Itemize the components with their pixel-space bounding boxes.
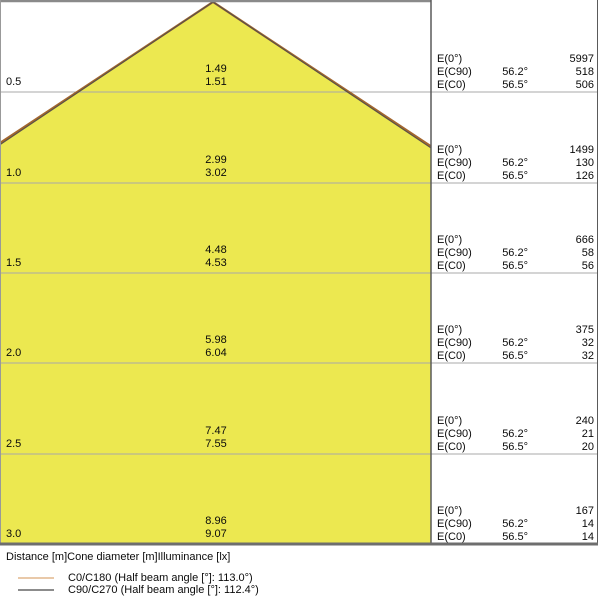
illuminance-row-label-1.5-1: E(0°) [437,234,497,247]
cone-diameter-values-0.5: 1.49 1.51 [166,63,266,89]
illuminance-row-value-3.0-2: 14 [530,518,594,531]
illuminance-row-value-1.5-1: 666 [530,234,594,247]
illuminance-row-angle-0.5-2: 56.2° [460,66,528,79]
cone-diameter-values-1.0: 2.99 3.02 [166,154,266,180]
illuminance-row-label-2.0-1: E(0°) [437,324,497,337]
legend-row-c90-c270: C90/C270 (Half beam angle [°]: 112.4°) [18,584,259,596]
illuminance-row-value-2.0-2: 32 [530,337,594,350]
illuminance-row-angle-3.0-3: 56.5° [460,531,528,544]
illuminance-row-value-3.0-1: 167 [530,505,594,518]
c0-c180-line-swatch [18,577,54,579]
illuminance-row-angle-1.5-2: 56.2° [460,247,528,260]
illuminance-row-value-2.5-2: 21 [530,428,594,441]
illuminance-row-angle-3.0-2: 56.2° [460,518,528,531]
distance-label-3.0: 3.0 [6,528,21,541]
illuminance-row-value-2.0-1: 375 [530,324,594,337]
distance-label-1.0: 1.0 [6,167,21,180]
illuminance-row-value-3.0-3: 14 [530,531,594,544]
distance-label-2.0: 2.0 [6,347,21,360]
cone-diameter-values-2.5: 7.47 7.55 [166,425,266,451]
illuminance-row-angle-2.0-3: 56.5° [460,350,528,363]
illuminance-row-value-1.0-1: 1499 [530,144,594,157]
legend-row-c0-c180: C0/C180 (Half beam angle [°]: 113.0°) [18,572,253,584]
cone-diameter-values-1.5: 4.48 4.53 [166,244,266,270]
legend-label-c90-c270: C90/C270 (Half beam angle [°]: 112.4°) [68,584,259,596]
illuminance-row-value-1.0-3: 126 [530,170,594,183]
illuminance-row-angle-1.0-3: 56.5° [460,170,528,183]
distance-label-2.5: 2.5 [6,438,21,451]
illuminance-row-label-0.5-1: E(0°) [437,53,497,66]
illuminance-row-label-1.0-1: E(0°) [437,144,497,157]
cone-diagram-page: 0.51.49 1.51E(0°)5997E(C90)56.2°518E(C0)… [0,0,600,600]
distance-label-0.5: 0.5 [6,76,21,89]
illuminance-row-value-2.5-1: 240 [530,415,594,428]
illuminance-row-value-0.5-3: 506 [530,79,594,92]
illuminance-row-angle-1.5-3: 56.5° [460,260,528,273]
illuminance-row-value-1.5-3: 56 [530,260,594,273]
illuminance-row-value-1.5-2: 58 [530,247,594,260]
illuminance-row-angle-1.0-2: 56.2° [460,157,528,170]
cone-diameter-values-2.0: 5.98 6.04 [166,334,266,360]
illuminance-row-value-0.5-1: 5997 [530,53,594,66]
c90-c270-line-swatch [18,589,54,591]
illuminance-row-value-2.0-3: 32 [530,350,594,363]
illuminance-row-angle-2.0-2: 56.2° [460,337,528,350]
legend-label-c0-c180: C0/C180 (Half beam angle [°]: 113.0°) [68,572,253,584]
axis-caption: Distance [m]Cone diameter [m]Illuminance… [6,551,230,563]
illuminance-row-value-1.0-2: 130 [530,157,594,170]
illuminance-row-value-2.5-3: 20 [530,441,594,454]
illuminance-row-label-2.5-1: E(0°) [437,415,497,428]
cone-diameter-values-3.0: 8.96 9.07 [166,515,266,541]
distance-label-1.5: 1.5 [6,257,21,270]
illuminance-row-value-0.5-2: 518 [530,66,594,79]
illuminance-row-angle-2.5-3: 56.5° [460,441,528,454]
illuminance-row-angle-0.5-3: 56.5° [460,79,528,92]
illuminance-row-angle-2.5-2: 56.2° [460,428,528,441]
illuminance-row-label-3.0-1: E(0°) [437,505,497,518]
